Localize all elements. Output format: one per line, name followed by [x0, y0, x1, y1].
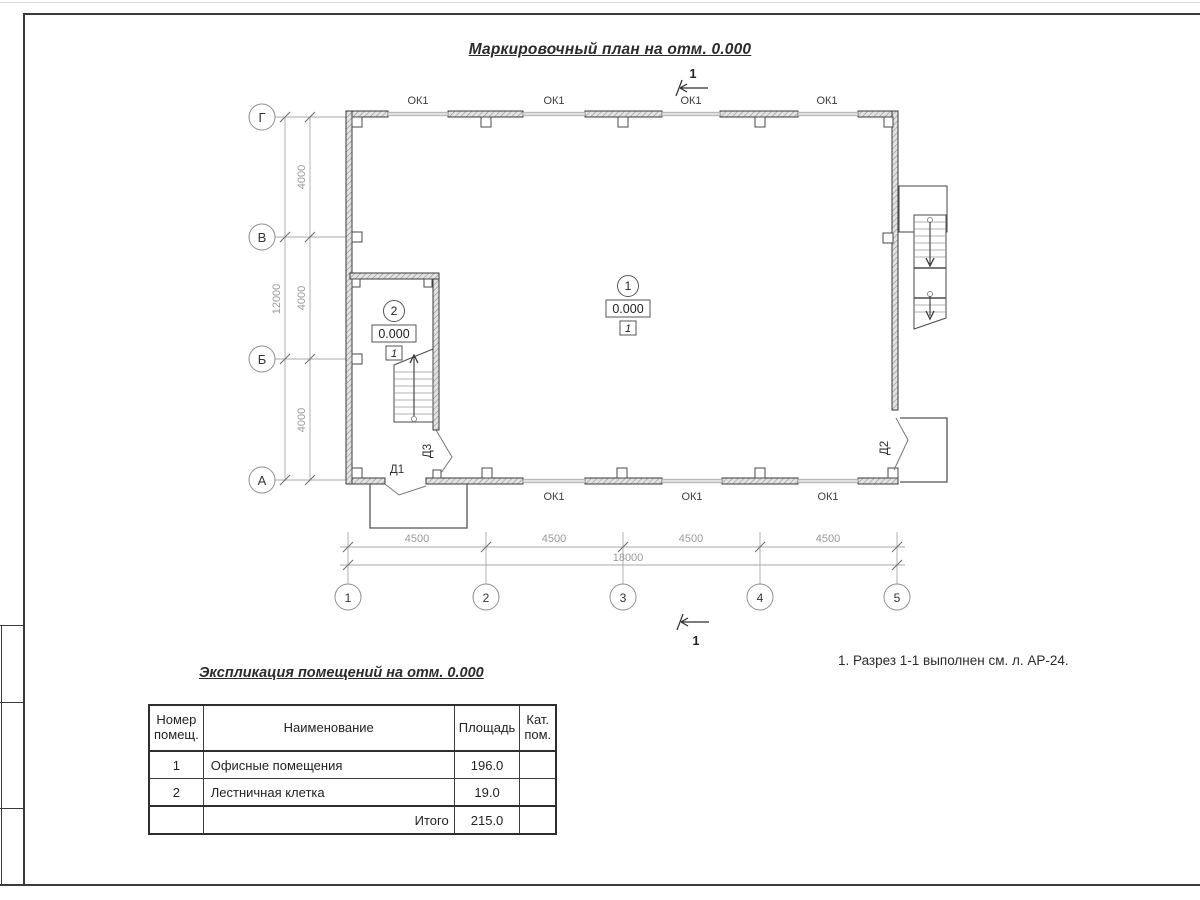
window-tag-ok1: ОК1	[680, 95, 701, 107]
total-area: 215.0	[454, 806, 520, 834]
dim-text-left: 4000 4000 4000 12000	[271, 165, 308, 432]
exterior-walls	[346, 111, 898, 484]
axis-label-a: А	[258, 473, 267, 488]
dim-4500: 4500	[679, 533, 703, 545]
axis-label-g: Г	[258, 110, 265, 125]
sheet-border-bottom	[0, 884, 1200, 886]
axis-label-4: 4	[757, 591, 764, 605]
drawing-sheet: Маркировочный план на отм. 0.000	[0, 0, 1200, 900]
section-mark-top	[676, 80, 708, 96]
door-tag-d1: Д1	[390, 464, 404, 476]
floor-plan: Г В Б А 4000 4000 4000 12000	[0, 0, 1200, 660]
axis-label-2: 2	[483, 591, 490, 605]
staircase-right	[899, 186, 947, 329]
dim-4000: 4000	[296, 165, 308, 189]
door-d1-swing	[385, 484, 426, 495]
floor-type-mark: 1	[391, 348, 397, 360]
section-label-top: 1	[690, 67, 697, 81]
total-label: Итого	[203, 806, 454, 834]
cell-number: 1	[149, 751, 203, 779]
cell-category	[520, 751, 556, 779]
cell-number: 2	[149, 779, 203, 807]
window-labels: ОК1 ОК1 ОК1 ОК1 ОК1 ОК1 ОК1	[407, 95, 838, 503]
door-tag-d3: Д3	[422, 444, 434, 458]
table-row: 1 Офисные помещения 196.0	[149, 751, 556, 779]
window-tag-ok1: ОК1	[681, 491, 702, 503]
room-elevation: 0.000	[612, 302, 643, 316]
dim-4500: 4500	[542, 533, 566, 545]
titleblock-strip-line	[0, 702, 23, 703]
header-area: Площадь	[454, 705, 520, 751]
door-d3-swing	[436, 430, 452, 473]
axis-label-v: В	[258, 230, 267, 245]
header-number: Номер помещ.	[149, 705, 203, 751]
floor-type-mark: 1	[625, 323, 631, 335]
windows	[388, 112, 858, 483]
room-number: 2	[391, 304, 398, 318]
axis-grid-left	[275, 117, 346, 480]
axis-label-3: 3	[620, 591, 627, 605]
axis-label-b: Б	[258, 352, 267, 367]
cell-name: Лестничная клетка	[203, 779, 454, 807]
cell-name: Офисные помещения	[203, 751, 454, 779]
dim-4500: 4500	[405, 533, 429, 545]
axis-label-1: 1	[345, 591, 352, 605]
section-mark-bottom	[677, 614, 709, 630]
dim-4000: 4000	[296, 408, 308, 432]
titleblock-strip-edge	[1, 625, 2, 884]
room-elevation: 0.000	[378, 327, 409, 341]
cell-area: 196.0	[454, 751, 520, 779]
room-number: 1	[625, 279, 632, 293]
entrance-porch-right	[900, 418, 947, 482]
cell-number-empty	[149, 806, 203, 834]
table-title: Экспликация помещений на отм. 0.000	[199, 665, 484, 681]
titleblock-strip-line	[0, 808, 23, 809]
header-name: Наименование	[203, 705, 454, 751]
door-tag-d2: Д2	[879, 441, 891, 455]
section-label-bottom: 1	[693, 634, 700, 648]
cell-category-empty	[520, 806, 556, 834]
cell-area: 19.0	[454, 779, 520, 807]
dim-text-bottom: 4500 4500 4500 4500 18000	[405, 533, 840, 564]
dim-12000: 12000	[271, 284, 283, 315]
room-tag-1: 1 0.000 1	[606, 276, 650, 336]
table-row: 2 Лестничная клетка 19.0	[149, 779, 556, 807]
door-d2-swing	[894, 418, 908, 470]
axis-label-5: 5	[894, 591, 901, 605]
dim-4500: 4500	[816, 533, 840, 545]
window-tag-ok1: ОК1	[407, 95, 428, 107]
window-tag-ok1: ОК1	[816, 95, 837, 107]
room-tag-2: 2 0.000 1	[372, 301, 416, 361]
axis-bubbles-bottom: 1 2 3 4 5	[335, 584, 910, 610]
window-tag-ok1: ОК1	[543, 491, 564, 503]
dim-18000: 18000	[613, 552, 644, 564]
window-tag-ok1: ОК1	[817, 491, 838, 503]
table-header-row: Номер помещ. Наименование Площадь Кат. п…	[149, 705, 556, 751]
table-total-row: Итого 215.0	[149, 806, 556, 834]
explication-table: Номер помещ. Наименование Площадь Кат. п…	[148, 704, 557, 835]
entrance-porch-left	[370, 484, 467, 528]
drawing-note: 1. Разрез 1-1 выполнен см. л. АР-24.	[838, 653, 1069, 668]
header-category: Кат. пом.	[520, 705, 556, 751]
dim-4000: 4000	[296, 286, 308, 310]
window-tag-ok1: ОК1	[543, 95, 564, 107]
cell-category	[520, 779, 556, 807]
